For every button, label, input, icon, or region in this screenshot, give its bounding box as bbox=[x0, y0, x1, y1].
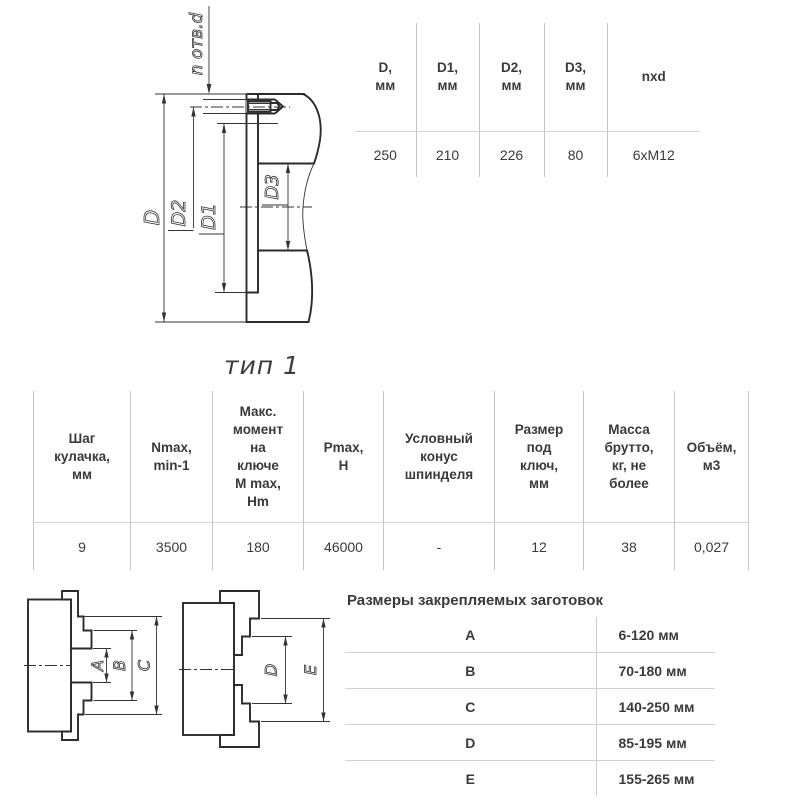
value-max-torque: 180 bbox=[213, 523, 304, 571]
value-d1: 210 bbox=[416, 132, 479, 178]
col-header-nxd: nxd bbox=[607, 23, 700, 132]
value-gross-weight: 38 bbox=[584, 523, 675, 571]
col-header-nmax: Nmax,min-1 bbox=[131, 391, 213, 523]
value-nxd: 6xM12 bbox=[607, 132, 700, 178]
workpiece-table-title: Размеры закрепляемых заготовок bbox=[347, 592, 603, 609]
dim-d2-label: D2 bbox=[168, 200, 190, 227]
chuck1-bottom-jaw bbox=[62, 683, 92, 741]
col-header-d2: D2,мм bbox=[479, 23, 544, 132]
row-d-value: 85-195 мм bbox=[596, 725, 715, 761]
table-row: C 140-250 мм bbox=[345, 689, 715, 725]
col-header-jaw-step: Шагкулачка,мм bbox=[34, 391, 131, 523]
row-a-value: 6-120 мм bbox=[596, 617, 715, 653]
dim-a-label: A bbox=[88, 660, 107, 672]
catalog-page: n отв.d D D2 D1 D3 тип 1 D,мм D1,мм bbox=[0, 0, 812, 812]
value-jaw-step: 9 bbox=[34, 523, 131, 571]
spec-table-value-row: 9 3500 180 46000 - 12 38 0,027 bbox=[34, 523, 749, 571]
specifications-table: Шагкулачка,мм Nmax,min-1 Макс.моментнакл… bbox=[33, 391, 749, 570]
dim-d3-label: D3 bbox=[262, 174, 283, 199]
row-b-name: B bbox=[345, 653, 596, 689]
col-header-wrench-size: Размерподключ,мм bbox=[495, 391, 584, 523]
dim-b-label: B bbox=[110, 660, 129, 671]
col-header-volume: Объём,м3 bbox=[675, 391, 749, 523]
value-wrench-size: 12 bbox=[495, 523, 584, 571]
chuck2-bottom-jaw bbox=[220, 685, 259, 747]
row-b-value: 70-180 мм bbox=[596, 653, 715, 689]
chuck1-top-jaw bbox=[62, 591, 92, 649]
value-pmax: 46000 bbox=[304, 523, 384, 571]
type-label: тип 1 bbox=[224, 351, 300, 380]
row-c-value: 140-250 мм bbox=[596, 689, 715, 725]
flange-table-header-row: D,мм D1,мм D2,мм D3,мм nxd bbox=[355, 23, 700, 132]
chuck2-top-jaw bbox=[220, 591, 259, 655]
table-row: B 70-180 мм bbox=[345, 653, 715, 689]
flange-table-value-row: 250 210 226 80 6xM12 bbox=[355, 132, 700, 178]
table-row: D 85-195 мм bbox=[345, 725, 715, 761]
dim-d1-label: D1 bbox=[198, 203, 220, 230]
dim-d-label: D bbox=[262, 664, 281, 676]
flange-bottom-block bbox=[247, 251, 313, 323]
value-d3: 80 bbox=[544, 132, 607, 178]
col-header-d3: D3,мм bbox=[544, 23, 607, 132]
table-row: E 155-265 мм bbox=[345, 761, 715, 797]
row-c-name: C bbox=[345, 689, 596, 725]
value-spindle-taper: - bbox=[384, 523, 495, 571]
flange-dimensions-table: D,мм D1,мм D2,мм D3,мм nxd 250 210 226 8… bbox=[355, 23, 700, 177]
table-row: A 6-120 мм bbox=[345, 617, 715, 653]
flange-section-drawing: n отв.d D D2 D1 D3 bbox=[130, 0, 345, 350]
col-header-d: D,мм bbox=[355, 23, 416, 132]
row-a-name: A bbox=[345, 617, 596, 653]
value-d2: 226 bbox=[479, 132, 544, 178]
value-nmax: 3500 bbox=[131, 523, 213, 571]
row-e-name: E bbox=[345, 761, 596, 797]
dim-d-label: D bbox=[140, 210, 164, 225]
spec-table-header-row: Шагкулачка,мм Nmax,min-1 Макс.моментнакл… bbox=[34, 391, 749, 523]
dim-c-label: C bbox=[135, 659, 154, 671]
col-header-gross-weight: Массабрутто,кг, неболее bbox=[584, 391, 675, 523]
leader-arrow bbox=[207, 84, 212, 94]
chuck2-body bbox=[183, 603, 234, 735]
workpiece-sizes-table: A 6-120 мм B 70-180 мм C 140-250 мм D 85… bbox=[345, 617, 715, 796]
row-d-name: D bbox=[345, 725, 596, 761]
value-d: 250 bbox=[355, 132, 416, 178]
dim-e-label: E bbox=[301, 664, 320, 675]
col-header-d1: D1,мм bbox=[416, 23, 479, 132]
col-header-pmax: Pmax,H bbox=[304, 391, 384, 523]
row-e-value: 155-265 мм bbox=[596, 761, 715, 797]
value-volume: 0,027 bbox=[675, 523, 749, 571]
col-header-spindle-taper: Условныйконусшпинделя bbox=[384, 391, 495, 523]
chuck-views-drawing: A B C D E bbox=[10, 582, 340, 762]
col-header-max-torque: Макс.моментнаключеM max,Hm bbox=[213, 391, 304, 523]
leader-label: n отв.d bbox=[187, 12, 207, 75]
